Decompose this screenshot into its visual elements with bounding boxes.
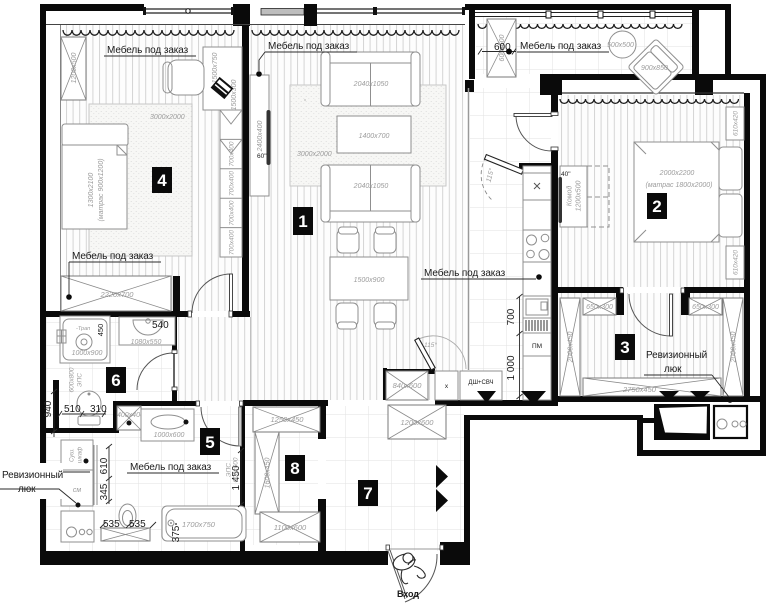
- svg-text:2000x2200: 2000x2200: [659, 170, 695, 177]
- svg-text:1200x500: 1200x500: [71, 53, 78, 84]
- svg-text:535: 535: [129, 519, 146, 530]
- svg-text:Ревизионный: Ревизионный: [2, 470, 63, 481]
- svg-text:(матрас 1800x2000): (матрас 1800x2000): [646, 182, 713, 189]
- svg-text:610x420: 610x420: [733, 111, 740, 136]
- svg-text:700x400: 700x400: [229, 230, 236, 255]
- svg-text:1000x900: 1000x900: [72, 350, 103, 357]
- svg-text:2: 2: [652, 197, 661, 216]
- svg-text:2220x700: 2220x700: [100, 290, 135, 299]
- svg-text:1250x450: 1250x450: [271, 415, 305, 424]
- svg-text:700: 700: [506, 308, 517, 325]
- svg-text:ПМ: ПМ: [532, 343, 542, 350]
- svg-text:Ревизионный: Ревизионный: [646, 350, 707, 361]
- svg-text:1700x750: 1700x750: [182, 520, 216, 529]
- svg-text:2000x450: 2000x450: [731, 332, 738, 364]
- svg-text:2000x450: 2000x450: [568, 332, 575, 364]
- svg-text:900x850: 900x850: [641, 65, 668, 72]
- svg-text:Вход: Вход: [397, 589, 419, 599]
- svg-text:1080x550: 1080x550: [131, 339, 162, 346]
- svg-text:7: 7: [363, 484, 372, 503]
- svg-text:-Трап: -Трап: [76, 326, 90, 332]
- svg-text:600x600: 600x600: [233, 457, 240, 482]
- svg-text:345: 345: [99, 483, 110, 500]
- svg-text:840x600: 840x600: [393, 381, 423, 390]
- svg-text:Мебель под заказ: Мебель под заказ: [107, 44, 189, 56]
- svg-text:700x400: 700x400: [229, 200, 236, 225]
- svg-text:610x420: 610x420: [733, 250, 740, 275]
- svg-text:1500x900: 1500x900: [354, 277, 385, 284]
- svg-text:(матрас 900x1200): (матрас 900x1200): [98, 158, 105, 221]
- svg-text:700x400: 700x400: [229, 141, 236, 166]
- svg-text:1 000: 1 000: [506, 355, 517, 380]
- svg-text:540: 540: [152, 320, 169, 331]
- svg-text:ЭПС: ЭПС: [77, 373, 84, 387]
- svg-text:375: 375: [171, 525, 182, 542]
- svg-text:2040x1050: 2040x1050: [353, 183, 389, 190]
- svg-text:Мебель под заказ: Мебель под заказ: [72, 250, 154, 262]
- svg-text:Суш.: Суш.: [70, 448, 76, 462]
- svg-text:1200x600: 1200x600: [401, 418, 435, 427]
- svg-text:500x500: 500x500: [607, 42, 634, 49]
- svg-text:1: 1: [298, 212, 307, 231]
- svg-text:3000x2000: 3000x2000: [297, 151, 332, 158]
- svg-text:люк: люк: [18, 484, 36, 495]
- svg-text:Мебель под заказ: Мебель под заказ: [424, 267, 506, 279]
- svg-text:6: 6: [111, 371, 120, 390]
- svg-text:2750x450: 2750x450: [622, 385, 657, 394]
- svg-text:535: 535: [103, 519, 120, 530]
- svg-text:2040x1050: 2040x1050: [353, 81, 389, 88]
- svg-text:2400x400: 2400x400: [257, 121, 264, 153]
- svg-text:400x400: 400x400: [117, 412, 144, 419]
- svg-text:1500x750: 1500x750: [212, 53, 219, 84]
- svg-text:5: 5: [205, 433, 214, 452]
- svg-text:650x300: 650x300: [586, 304, 613, 311]
- svg-text:940: 940: [43, 400, 54, 417]
- svg-text:см: см: [73, 487, 82, 494]
- svg-text:Мебель под заказ: Мебель под заказ: [130, 461, 212, 473]
- svg-text:450: 450: [96, 324, 105, 337]
- svg-text:1100x600: 1100x600: [274, 523, 307, 532]
- svg-text:3: 3: [620, 338, 629, 357]
- svg-text:510: 510: [64, 404, 81, 415]
- svg-text:8: 8: [290, 459, 299, 478]
- svg-text:ЭПС: ЭПС: [226, 463, 233, 477]
- svg-text:1500x300: 1500x300: [231, 80, 238, 111]
- svg-text:40": 40": [561, 171, 571, 178]
- svg-text:3000x2000: 3000x2000: [150, 114, 185, 121]
- svg-text:4: 4: [157, 171, 167, 190]
- svg-text:1300x2100: 1300x2100: [88, 173, 95, 208]
- svg-text:610: 610: [99, 457, 110, 474]
- svg-text:шкаф: шкаф: [78, 447, 84, 463]
- svg-text:1000x600: 1000x600: [154, 432, 185, 439]
- svg-text:1200x500: 1200x500: [576, 181, 583, 212]
- svg-text:1600x450: 1600x450: [265, 458, 272, 489]
- svg-text:Мебель под заказ: Мебель под заказ: [268, 40, 350, 52]
- svg-text:60": 60": [257, 153, 267, 160]
- svg-text:115°: 115°: [424, 341, 437, 349]
- svg-text:люк: люк: [664, 364, 682, 375]
- svg-text:700x400: 700x400: [229, 171, 236, 196]
- svg-text:ДШ+СВЧ: ДШ+СВЧ: [468, 380, 493, 386]
- svg-text:650x300: 650x300: [692, 304, 719, 311]
- svg-text:600x800: 600x800: [69, 367, 76, 392]
- svg-text:Комод: Комод: [566, 186, 574, 207]
- svg-text:Мебель под заказ: Мебель под заказ: [520, 40, 602, 52]
- svg-text:1400x700: 1400x700: [359, 133, 390, 140]
